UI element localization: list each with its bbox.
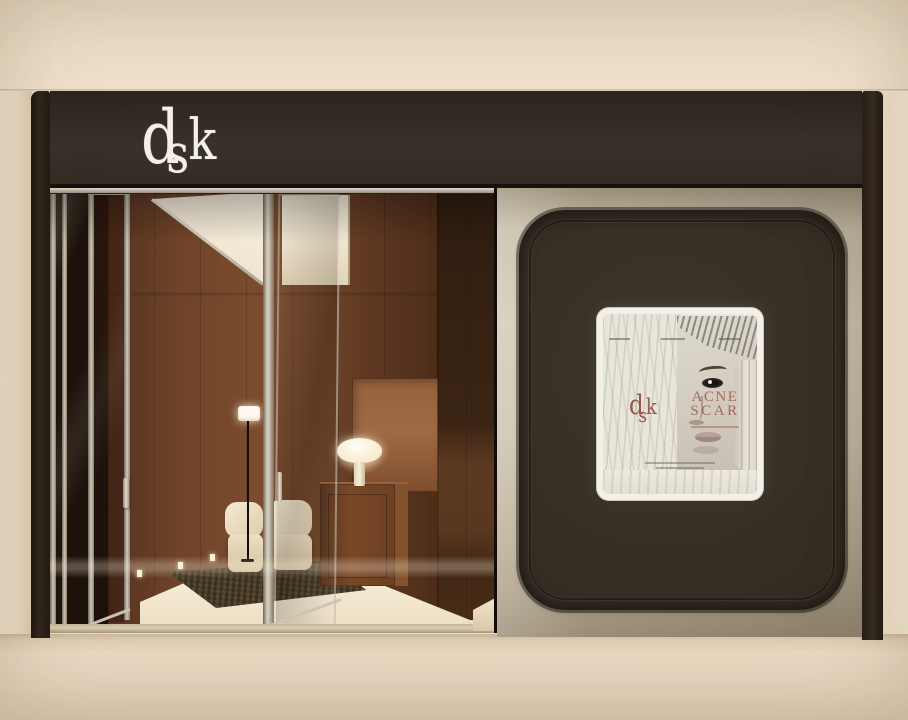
- dsk-sign-logo: d s k: [141, 101, 219, 183]
- glass-reflection-band: [50, 556, 497, 578]
- storefront-render: d s k: [0, 0, 908, 720]
- sign-letter-s: s: [166, 127, 189, 181]
- upper-wall: [0, 0, 908, 91]
- poster-microtext: [609, 338, 639, 346]
- poster-lips: [695, 432, 721, 442]
- glazing-head-frame: [50, 188, 497, 194]
- right-wall: [883, 91, 908, 639]
- poster-eye-glint: [708, 380, 712, 384]
- sign-letter-k: k: [189, 113, 217, 169]
- poster-chin-shadow: [693, 446, 719, 454]
- poster-subtitle-bar: [691, 426, 739, 428]
- poster-microtext: [719, 338, 749, 346]
- poster-microtext: [661, 338, 695, 346]
- ground-pavement: [0, 634, 908, 720]
- right-pillar: [862, 91, 883, 640]
- poster-screen: d s k ACNE SCAR: [597, 308, 763, 500]
- poster-headline-line2: SCAR: [681, 404, 749, 418]
- threshold-strip: [50, 624, 497, 633]
- poster-footer-text-bar: [645, 462, 715, 464]
- left-pillar: [31, 91, 50, 638]
- storefront-glazing: [50, 188, 497, 633]
- poster-sand-texture-bottom: [603, 470, 757, 494]
- display-panel: d s k ACNE SCAR: [497, 186, 862, 637]
- poster-eye: [702, 378, 723, 388]
- poster-mark-letter-k: k: [646, 397, 657, 418]
- left-wall: [0, 91, 32, 637]
- poster-nostril-shadow: [689, 420, 704, 425]
- poster-headline-line1: ACNE: [681, 390, 749, 404]
- poster-footer-text-bar: [656, 467, 704, 469]
- poster-dsk-mark: d s k: [629, 392, 666, 438]
- poster-eyebrow: [699, 365, 728, 377]
